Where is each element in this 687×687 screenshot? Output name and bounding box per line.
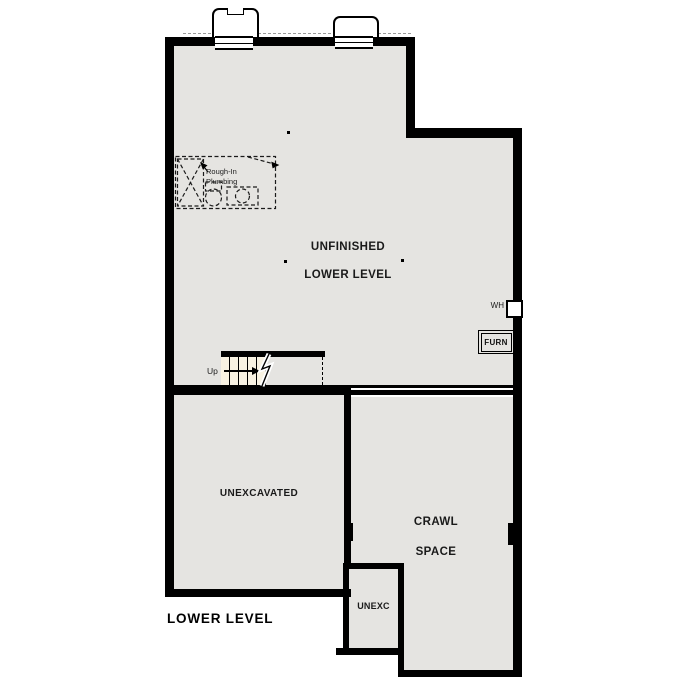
crawl-space-room-label: CRAWL SPACE [377,500,495,575]
main-room-label: UNFINISHED LOWER LEVEL [278,226,418,296]
basement-window-icon [215,36,253,50]
furnace-label: FURN [481,333,512,352]
floor-plan-canvas: Up Rough-In Plumbing WH FURN UNFINISHED [0,0,687,687]
stair-run-dashed-line [322,357,323,385]
unexc-room-label: UNEXC [349,599,398,613]
wall-stub-left [348,523,353,541]
exterior-cutout [349,655,398,677]
rough-in-line1: Rough-In [206,167,237,177]
rough-in-plumbing-label: Rough-In Plumbing [206,167,237,186]
main-room-label-line1: UNFINISHED [278,240,418,254]
main-level-floor [174,46,406,386]
water-heater-label: WH [482,301,504,310]
stairs-up-label: Up [207,366,218,376]
unexc-wall-bottom [336,648,404,655]
unexcavated-room-label: UNEXCAVATED [174,487,344,501]
stair-direction-arrow [224,370,254,372]
furnace-icon: FURN [478,330,514,354]
wall-unexcavated-bottom [165,589,351,597]
page-title: LOWER LEVEL [167,611,273,626]
crawl-space-label-line1: CRAWL [377,515,495,530]
wall-stub-right [508,523,513,545]
crawl-space-label-line2: SPACE [377,545,495,560]
basement-window-icon [335,36,373,49]
wall-right-upper [406,37,415,138]
stair-break-line-icon [258,353,276,387]
wall-mid-gap-line [351,388,513,390]
column-marker [287,131,290,134]
main-room-label-line2: LOWER LEVEL [278,268,418,282]
wall-right-main [513,128,522,677]
wall-left [165,37,174,597]
water-heater-icon [506,300,523,318]
wall-top [165,37,415,46]
rough-in-line2: Plumbing [206,177,237,187]
unexc-wall-right [398,563,404,677]
wall-crawl-bottom [398,670,522,677]
window-well-ladder-icon [227,8,244,15]
wall-step [406,128,522,138]
